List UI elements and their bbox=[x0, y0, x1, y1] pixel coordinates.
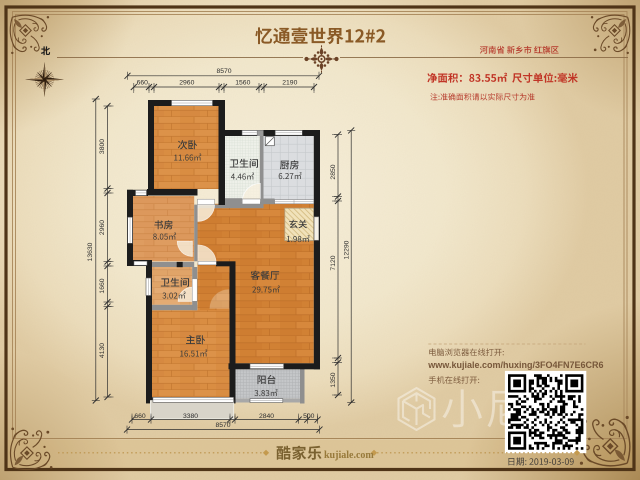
svg-text:8570: 8570 bbox=[216, 68, 231, 75]
svg-text:1660: 1660 bbox=[99, 278, 106, 293]
svg-text:2960: 2960 bbox=[99, 220, 106, 235]
svg-text:2960: 2960 bbox=[179, 79, 194, 86]
svg-text:660: 660 bbox=[134, 413, 146, 420]
svg-text:13630: 13630 bbox=[87, 242, 94, 261]
svg-text:500: 500 bbox=[303, 413, 315, 420]
svg-text:4130: 4130 bbox=[99, 343, 106, 358]
svg-text:1560: 1560 bbox=[235, 79, 250, 86]
svg-text:2840: 2840 bbox=[259, 413, 274, 420]
svg-text:kujiale.com: kujiale.com bbox=[324, 450, 374, 461]
svg-text:8570: 8570 bbox=[215, 422, 230, 429]
svg-text:3380: 3380 bbox=[183, 413, 198, 420]
svg-text:12290: 12290 bbox=[343, 240, 350, 259]
svg-text:www.kujiale.com/huxing/3FO4FN7: www.kujiale.com/huxing/3FO4FN7E6CR6 bbox=[427, 360, 603, 370]
svg-text:7120: 7120 bbox=[330, 255, 337, 270]
svg-text:2850: 2850 bbox=[330, 164, 337, 179]
svg-text:1350: 1350 bbox=[330, 372, 337, 387]
svg-text:2190: 2190 bbox=[282, 79, 297, 86]
svg-text:3800: 3800 bbox=[99, 139, 106, 154]
svg-text:660: 660 bbox=[137, 79, 149, 86]
